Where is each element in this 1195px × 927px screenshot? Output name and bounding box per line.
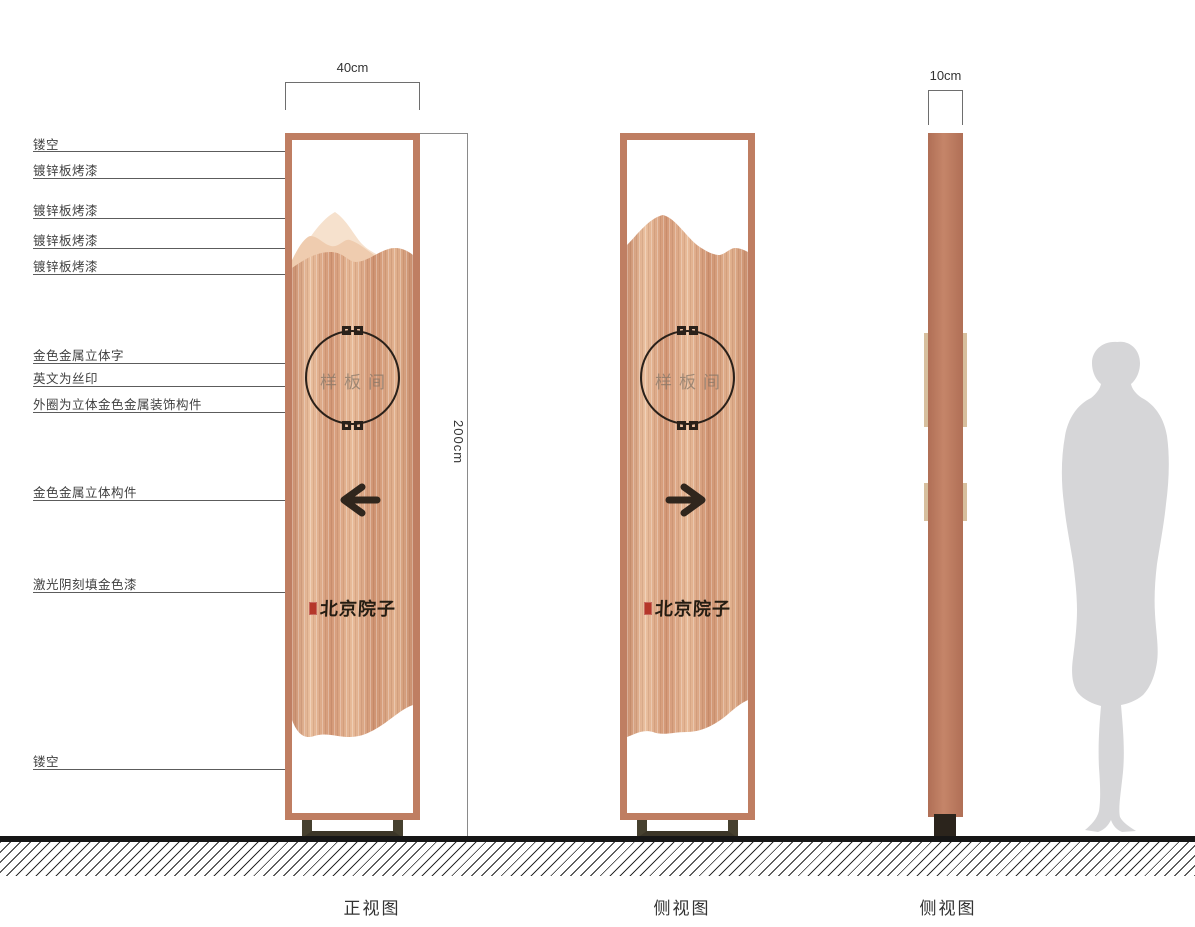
dim-side-width: 10cm (908, 68, 983, 83)
leader-line (33, 218, 322, 219)
front-view-panel: 样板间 北京院子 (285, 133, 420, 820)
brand-name-text: 北京院子 (319, 595, 396, 621)
dim-front-width: 40cm (285, 60, 420, 75)
left-arrow-icon (334, 479, 382, 521)
zone-name-text: 样板间 (627, 368, 748, 393)
side-view-label-2: 侧视图 (908, 894, 988, 919)
ground-hatch (0, 842, 1195, 876)
callout-galvanized-3: 镀锌板烤漆 (33, 230, 98, 249)
callout-gold-letters: 金色金属立体字 (33, 345, 124, 364)
leader-line (33, 386, 328, 387)
callout-gold-component: 金色金属立体构件 (33, 482, 137, 501)
dim-tick (420, 133, 467, 134)
side-view-panel: 样板间 北京院子 (620, 133, 755, 820)
brand-calligraphy: 北京院子 (292, 595, 413, 621)
leader-line (33, 151, 305, 152)
fret-ornament-icon (342, 421, 363, 430)
zone-name-text: 样板间 (292, 368, 413, 393)
human-scale-silhouette (1033, 340, 1173, 832)
dim-height-line (467, 133, 468, 836)
wood-grain-body (627, 140, 748, 813)
dim-height: 200cm (451, 420, 466, 464)
callout-galvanized-4: 镀锌板烤漆 (33, 256, 98, 275)
profile-base-block (934, 814, 956, 838)
leader-line (33, 412, 318, 413)
signage-design-drawing: 镂空 镀锌板烤漆 镀锌板烤漆 镀锌板烤漆 镀锌板烤漆 金色金属立体字 英文为丝印… (0, 0, 1195, 927)
fret-ornament-icon (342, 326, 363, 335)
fret-ornament-icon (677, 326, 698, 335)
brand-calligraphy: 北京院子 (627, 595, 748, 621)
red-seal-icon (644, 602, 652, 615)
leader-line (33, 274, 292, 275)
callout-laser-engraved: 激光阴刻填金色漆 (33, 574, 137, 593)
profile-view-bar (928, 133, 963, 817)
brand-name-text: 北京院子 (654, 595, 731, 621)
front-view-label: 正视图 (332, 894, 412, 919)
leader-line (33, 592, 306, 593)
callout-galvanized-1: 镀锌板烤漆 (33, 160, 98, 179)
leader-line (33, 769, 305, 770)
dim-bracket-10 (928, 90, 963, 125)
fret-ornament-icon (677, 421, 698, 430)
red-seal-icon (309, 602, 317, 615)
right-arrow-icon (664, 479, 712, 521)
callout-galvanized-2: 镀锌板烤漆 (33, 200, 98, 219)
dim-bracket-40 (285, 82, 420, 110)
callout-silkscreen: 英文为丝印 (33, 368, 98, 387)
callout-hollow-bottom: 镂空 (33, 751, 59, 770)
leader-line (33, 178, 292, 179)
side-view-label-1: 侧视图 (642, 894, 722, 919)
leader-line (33, 248, 292, 249)
callout-outer-ring: 外圈为立体金色金属装饰构件 (33, 394, 202, 413)
